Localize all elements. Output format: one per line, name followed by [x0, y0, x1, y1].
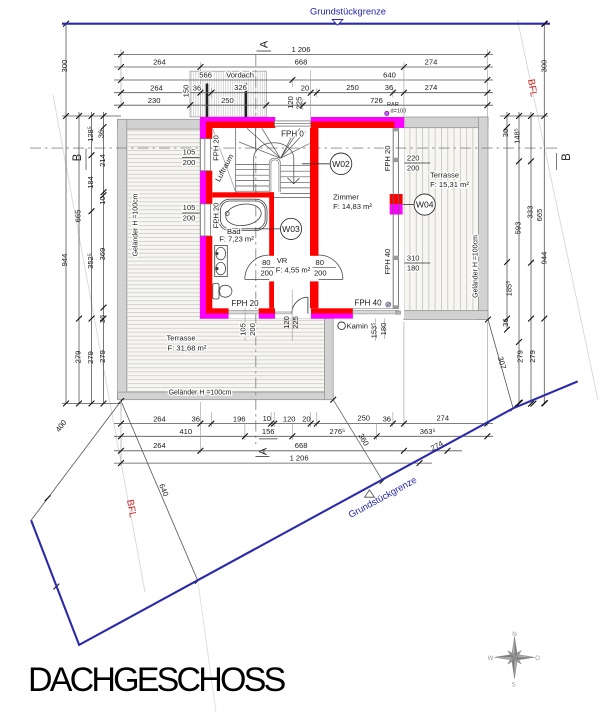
svg-text:250: 250: [221, 96, 234, 105]
svg-text:230: 230: [148, 96, 161, 105]
svg-text:593: 593: [514, 222, 523, 235]
svg-text:VR: VR: [277, 256, 288, 265]
svg-text:A: A: [259, 40, 271, 48]
svg-text:F: 15,31 m²: F: 15,31 m²: [430, 180, 469, 189]
svg-text:36: 36: [193, 83, 201, 92]
svg-text:W03: W03: [282, 224, 300, 234]
svg-text:O: O: [535, 655, 540, 662]
svg-text:N: N: [512, 631, 516, 638]
svg-text:120: 120: [283, 414, 296, 423]
svg-text:120: 120: [282, 316, 291, 329]
svg-text:F: 4,55 m²: F: 4,55 m²: [276, 266, 311, 275]
svg-text:W: W: [488, 655, 494, 662]
svg-text:264: 264: [153, 441, 166, 450]
svg-text:200: 200: [183, 213, 196, 222]
svg-text:B: B: [561, 153, 573, 161]
svg-text:W02: W02: [332, 159, 350, 169]
svg-text:640: 640: [383, 71, 396, 80]
svg-text:148⁵: 148⁵: [513, 128, 522, 144]
svg-text:36: 36: [501, 318, 510, 326]
svg-text:105: 105: [183, 148, 196, 157]
svg-text:FPH 20: FPH 20: [211, 135, 220, 161]
svg-text:F: 14,83 m²: F: 14,83 m²: [333, 202, 372, 211]
svg-text:F: 7,23 m²: F: 7,23 m²: [219, 235, 254, 244]
svg-text:36: 36: [385, 83, 393, 92]
svg-text:S: S: [512, 682, 516, 689]
svg-text:726: 726: [370, 96, 383, 105]
svg-text:80: 80: [262, 258, 270, 267]
svg-text:20: 20: [301, 83, 309, 92]
svg-text:Geländer H =100cm: Geländer H =100cm: [133, 193, 140, 256]
svg-text:180: 180: [379, 323, 388, 336]
svg-text:220: 220: [407, 154, 420, 163]
svg-text:FPH 20: FPH 20: [211, 203, 220, 229]
svg-text:665: 665: [535, 209, 544, 222]
svg-text:566: 566: [199, 71, 212, 80]
svg-text:279: 279: [516, 350, 525, 363]
svg-text:B: B: [72, 153, 84, 161]
svg-text:FPH 20: FPH 20: [231, 299, 259, 308]
svg-text:279: 279: [528, 350, 537, 363]
svg-text:300: 300: [539, 60, 548, 73]
svg-text:363⁵: 363⁵: [420, 427, 436, 436]
svg-text:Vordach: Vordach: [226, 71, 254, 80]
svg-text:36: 36: [383, 414, 391, 423]
svg-text:W04: W04: [416, 200, 434, 210]
svg-text:264: 264: [153, 414, 166, 423]
svg-text:214: 214: [98, 154, 107, 167]
svg-text:668: 668: [295, 441, 308, 450]
svg-text:FPH 20: FPH 20: [383, 146, 392, 172]
svg-text:279: 279: [86, 351, 95, 364]
svg-text:FPH 0: FPH 0: [281, 130, 304, 139]
svg-text:333: 333: [526, 206, 535, 219]
svg-text:200: 200: [248, 323, 257, 336]
svg-text:80: 80: [315, 258, 323, 267]
svg-text:250: 250: [357, 414, 370, 423]
svg-text:274: 274: [436, 414, 449, 423]
svg-text:150: 150: [182, 85, 191, 98]
svg-text:156: 156: [262, 427, 275, 436]
svg-text:20: 20: [302, 414, 310, 423]
svg-text:F: 31,68 m²: F: 31,68 m²: [168, 344, 207, 353]
svg-text:10: 10: [98, 196, 107, 204]
svg-text:Geländer H =100cm: Geländer H =100cm: [169, 390, 232, 397]
svg-text:200: 200: [407, 164, 420, 173]
svg-text:300: 300: [60, 60, 69, 73]
svg-text:276⁵: 276⁵: [329, 427, 345, 436]
svg-text:FPH 40: FPH 40: [354, 299, 382, 308]
svg-text:274: 274: [425, 58, 438, 67]
svg-text:10: 10: [263, 414, 271, 423]
svg-text:Terrasse: Terrasse: [430, 170, 459, 179]
svg-text:369: 369: [98, 248, 107, 261]
svg-text:105: 105: [183, 203, 196, 212]
svg-text:665: 665: [74, 210, 83, 223]
svg-text:196: 196: [233, 414, 246, 423]
svg-text:352⁵: 352⁵: [86, 253, 95, 269]
svg-text:264: 264: [153, 58, 166, 67]
svg-text:128⁵: 128⁵: [86, 126, 95, 142]
svg-text:Grundstückgrenze: Grundstückgrenze: [310, 7, 386, 17]
svg-text:264: 264: [150, 83, 163, 92]
svg-text:200: 200: [260, 269, 273, 278]
svg-text:185⁵: 185⁵: [505, 281, 514, 297]
svg-text:200: 200: [314, 269, 327, 278]
svg-text:279: 279: [98, 350, 107, 363]
svg-text:DACHGESCHOSS: DACHGESCHOSS: [28, 661, 286, 699]
svg-text:36: 36: [97, 130, 106, 138]
svg-text:200: 200: [183, 158, 196, 167]
svg-text:225: 225: [295, 97, 304, 110]
svg-text:310: 310: [407, 254, 420, 263]
svg-text:944: 944: [539, 252, 548, 265]
svg-text:250: 250: [346, 83, 359, 92]
svg-text:36: 36: [501, 129, 510, 137]
svg-text:FPH 40: FPH 40: [383, 249, 392, 275]
svg-text:Kamin: Kamin: [347, 322, 369, 331]
svg-text:Geländer H =100cm: Geländer H =100cm: [473, 235, 480, 298]
svg-text:1 206: 1 206: [290, 454, 309, 463]
svg-text:668: 668: [295, 58, 308, 67]
svg-text:410: 410: [179, 427, 192, 436]
svg-text:279: 279: [74, 351, 83, 364]
svg-text:Zimmer: Zimmer: [333, 192, 359, 201]
svg-text:36: 36: [191, 414, 199, 423]
svg-text:105: 105: [239, 323, 248, 336]
svg-text:225: 225: [291, 316, 300, 329]
svg-text:180: 180: [407, 264, 420, 273]
svg-text:274: 274: [425, 83, 438, 92]
svg-text:153⁵: 153⁵: [370, 323, 379, 339]
svg-text:944: 944: [60, 254, 69, 267]
svg-text:184: 184: [86, 176, 95, 189]
svg-text:1 206: 1 206: [291, 45, 310, 54]
svg-text:36: 36: [98, 315, 107, 323]
svg-text:326: 326: [234, 83, 247, 92]
svg-text:Terrasse: Terrasse: [166, 334, 195, 343]
